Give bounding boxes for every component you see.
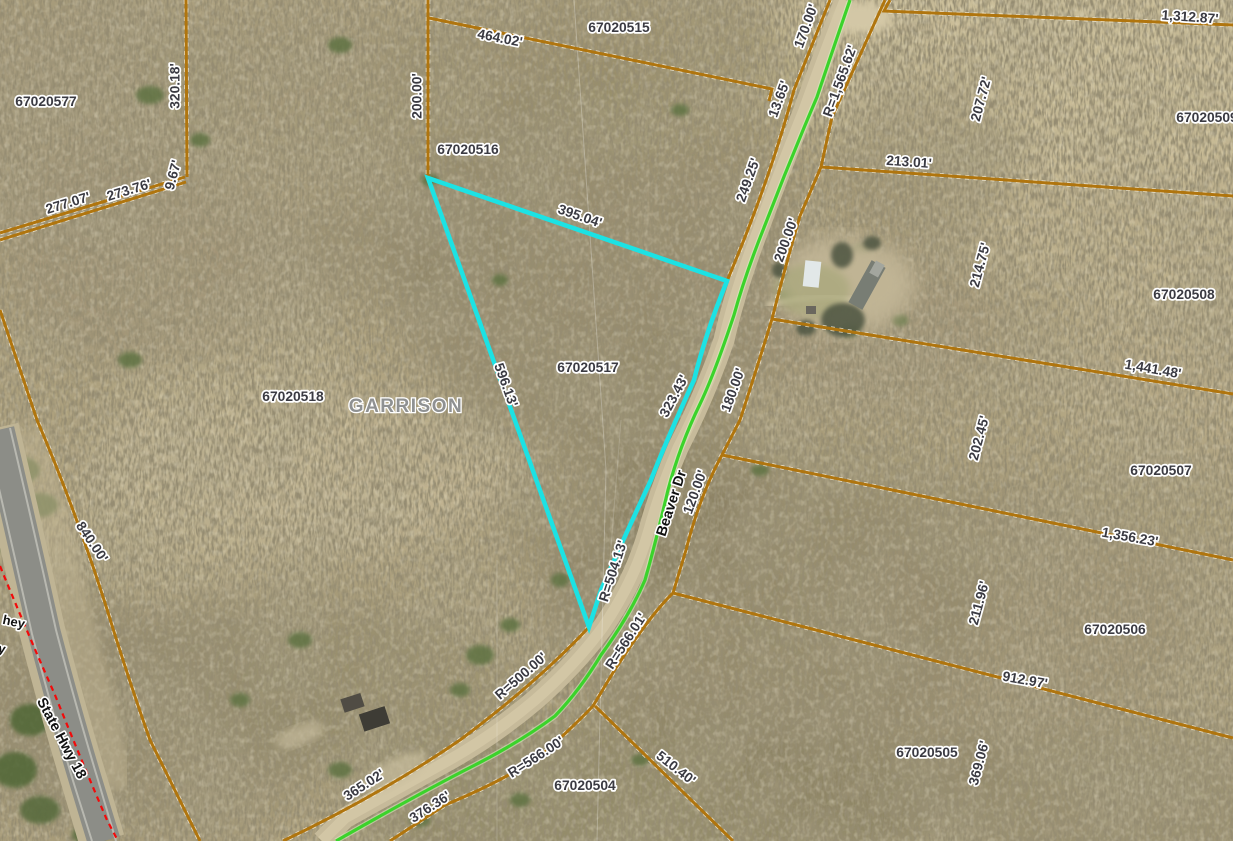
svg-text:67020508: 67020508 xyxy=(1153,287,1215,302)
svg-text:67020505: 67020505 xyxy=(896,745,958,760)
svg-text:67020518: 67020518 xyxy=(262,389,324,404)
svg-text:67020504: 67020504 xyxy=(554,778,616,793)
svg-text:67020577: 67020577 xyxy=(15,94,77,109)
svg-text:67020509: 67020509 xyxy=(1176,110,1233,125)
svg-text:GARRISON: GARRISON xyxy=(349,396,463,417)
svg-text:213.01': 213.01' xyxy=(886,153,932,171)
svg-text:200.00': 200.00' xyxy=(410,73,425,118)
svg-text:67020515: 67020515 xyxy=(588,20,650,35)
svg-text:67020516: 67020516 xyxy=(437,142,499,157)
svg-text:67020507: 67020507 xyxy=(1130,463,1192,478)
svg-text:67020506: 67020506 xyxy=(1084,622,1146,637)
svg-text:320.18': 320.18' xyxy=(168,63,183,108)
svg-text:67020517: 67020517 xyxy=(557,360,619,375)
